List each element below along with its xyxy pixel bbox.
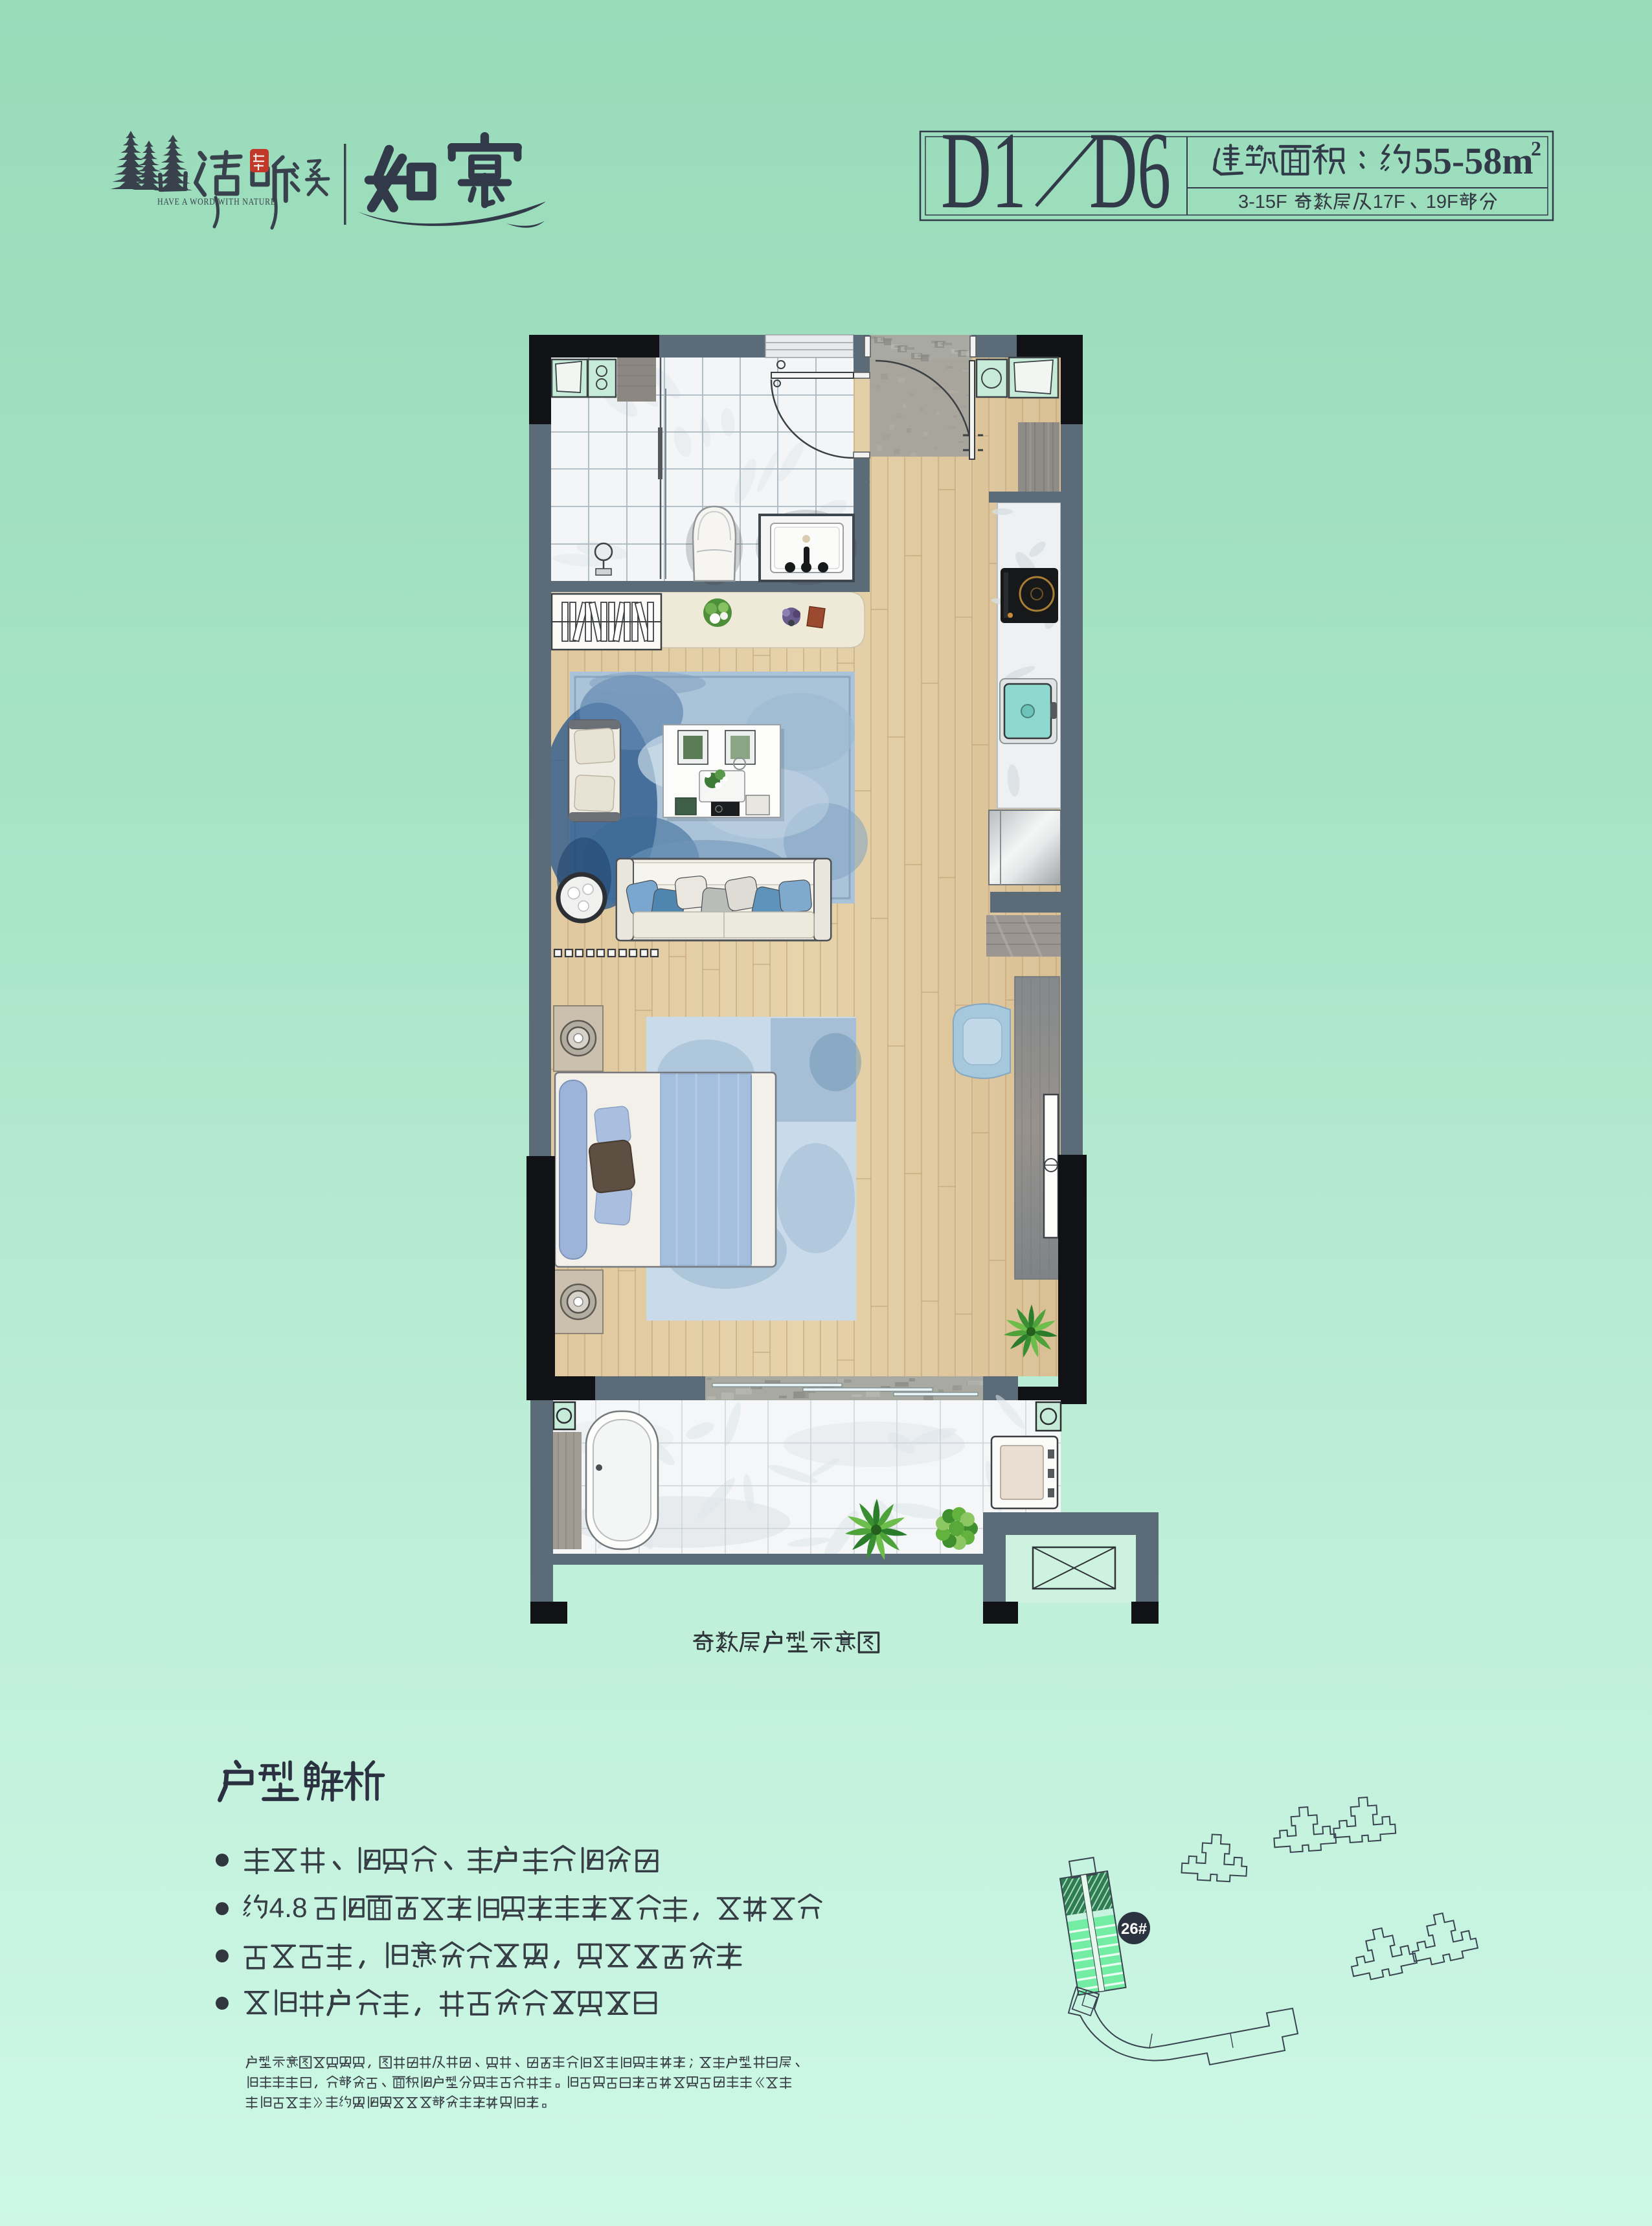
svg-text:19F: 19F xyxy=(1426,192,1458,212)
svg-text:4.8: 4.8 xyxy=(269,1893,308,1924)
svg-text:2: 2 xyxy=(1531,137,1541,160)
svg-text:17F: 17F xyxy=(1373,192,1405,212)
svg-text:3-15F: 3-15F xyxy=(1238,192,1287,212)
svg-text:D6: D6 xyxy=(1089,109,1171,231)
svg-text:HAVE A WORD WITH NATURE: HAVE A WORD WITH NATURE xyxy=(157,197,276,207)
svg-text:55-58m: 55-58m xyxy=(1414,140,1533,182)
svg-text:D1: D1 xyxy=(941,109,1026,231)
svg-text:26#: 26# xyxy=(1121,1920,1147,1938)
